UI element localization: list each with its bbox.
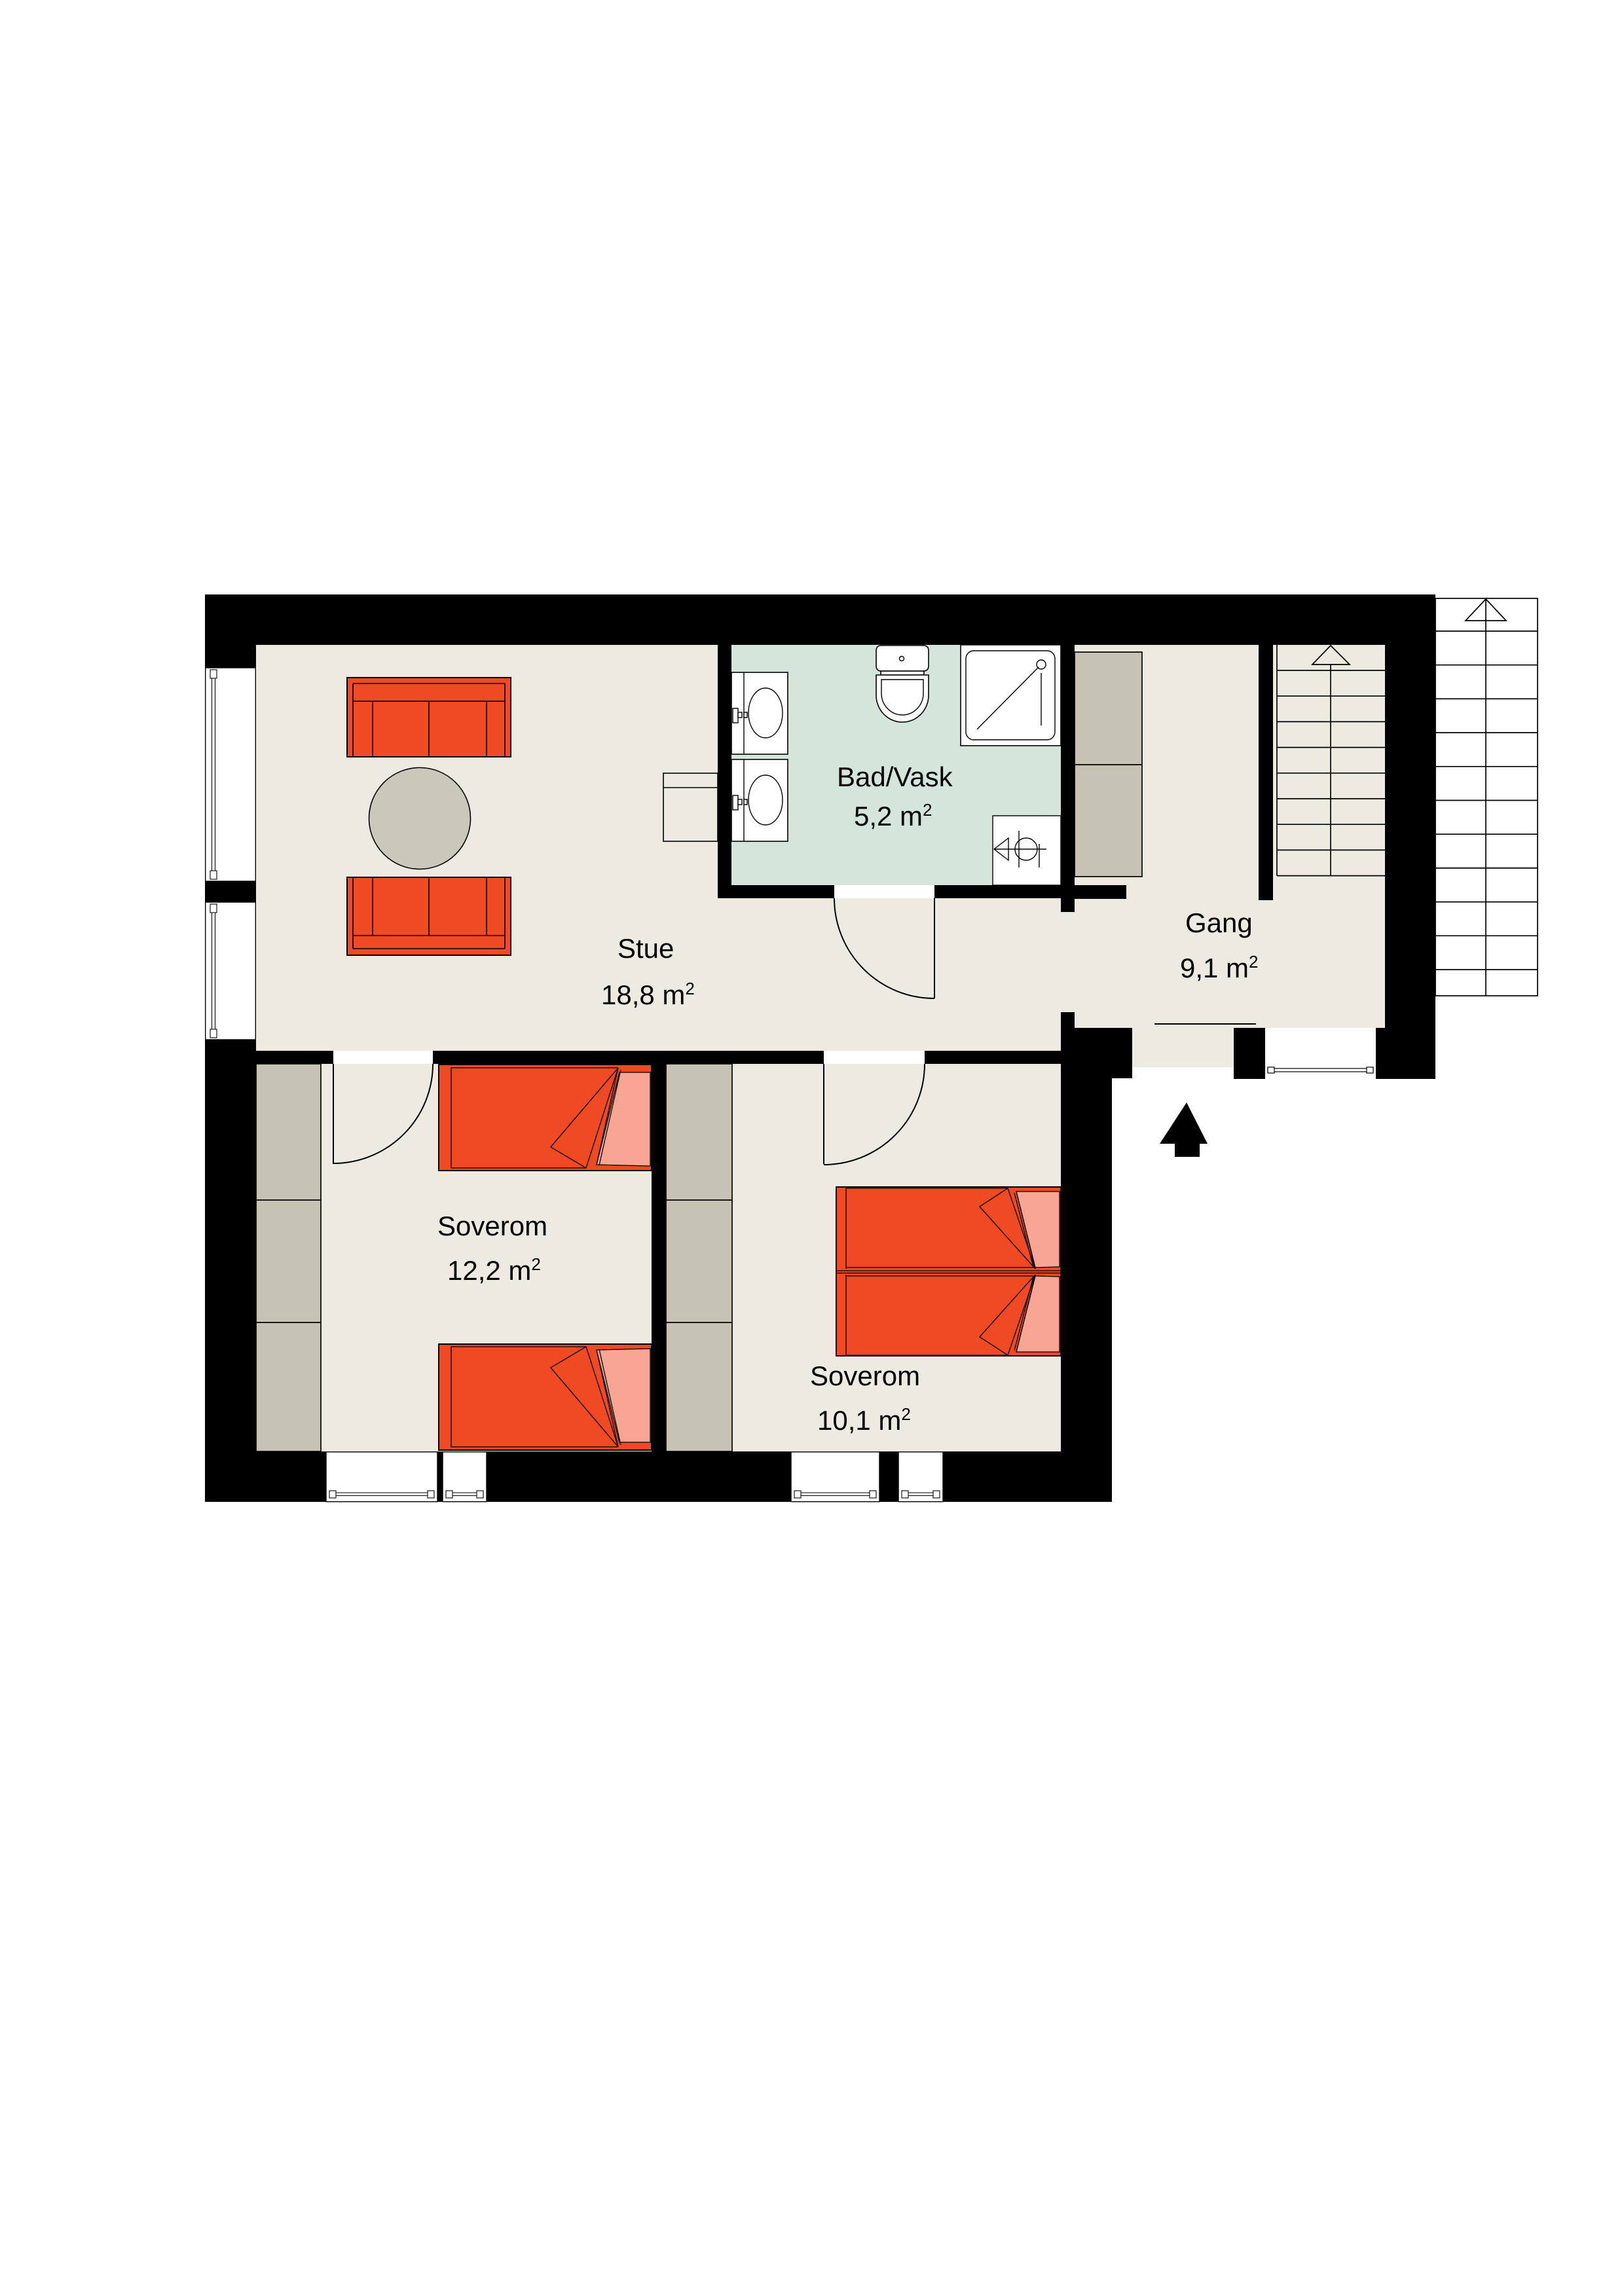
svg-text:Bad/Vask: Bad/Vask	[837, 761, 953, 792]
svg-text:12,2 m2: 12,2 m2	[447, 1254, 541, 1286]
svg-text:Soverom: Soverom	[810, 1360, 920, 1391]
svg-text:Gang: Gang	[1185, 907, 1253, 938]
svg-text:5,2 m2: 5,2 m2	[854, 800, 932, 831]
svg-text:Stue: Stue	[618, 933, 674, 964]
svg-text:18,8 m2: 18,8 m2	[601, 979, 695, 1010]
svg-text:10,1 m2: 10,1 m2	[817, 1404, 911, 1436]
svg-text:9,1 m2: 9,1 m2	[1180, 952, 1259, 983]
svg-text:Soverom: Soverom	[437, 1211, 547, 1241]
